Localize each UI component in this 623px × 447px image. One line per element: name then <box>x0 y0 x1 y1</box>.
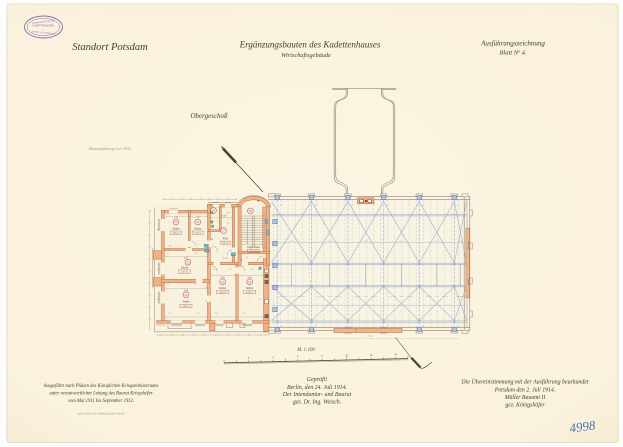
svg-text:1,8: 1,8 <box>198 214 201 216</box>
svg-text:— · —: — · — <box>41 29 47 31</box>
svg-text:4,1: 4,1 <box>167 284 170 286</box>
svg-text:4,50: 4,50 <box>435 296 440 298</box>
svg-text:Obergeschoß: Obergeschoß <box>190 112 228 120</box>
svg-text:Der Intendantur- und Baurat: Der Intendantur- und Baurat <box>282 392 352 398</box>
svg-text:1,1: 1,1 <box>246 257 249 259</box>
svg-text:Stube: Stube <box>246 286 254 290</box>
svg-text:2,5: 2,5 <box>239 218 242 220</box>
svg-text:45: 45 <box>422 325 424 327</box>
svg-text:Stube: Stube <box>172 226 180 230</box>
svg-text:45: 45 <box>457 325 459 327</box>
svg-text:2,4: 2,4 <box>197 313 200 315</box>
svg-text:45: 45 <box>387 205 389 207</box>
svg-text:Potsdam den 2. Juli 1914.: Potsdam den 2. Juli 1914. <box>494 387 556 394</box>
svg-text:Müller Bauamt II: Müller Bauamt II <box>504 395 547 401</box>
svg-text:4.40·5.25: 4.40·5.25 <box>182 305 189 308</box>
svg-text:35,44: 35,44 <box>367 334 374 338</box>
svg-text:85: 85 <box>259 299 261 301</box>
svg-text:Geprüft!: Geprüft! <box>307 376 328 383</box>
svg-text:unter verantwortlicher Leitung: unter verantwortlicher Leitung des Baura… <box>49 392 152 397</box>
svg-text:45: 45 <box>280 325 282 327</box>
svg-text:4,1: 4,1 <box>167 253 170 255</box>
svg-text:1,6: 1,6 <box>215 313 218 315</box>
svg-text:1,4: 1,4 <box>227 223 230 225</box>
svg-text:60: 60 <box>157 229 159 231</box>
svg-text:Berlin, den 24. Juli 1914.: Berlin, den 24. Juli 1914. <box>287 385 347 391</box>
svg-text:4.40·5.25: 4.40·5.25 <box>194 232 201 235</box>
svg-text:Stube: Stube <box>182 300 190 304</box>
svg-text:45: 45 <box>315 325 317 327</box>
svg-text:2,6: 2,6 <box>195 253 198 255</box>
svg-text:Flur: Flur <box>222 237 230 241</box>
svg-text:(7.10·3.25): (7.10·3.25) <box>249 250 258 253</box>
svg-text:Die Übereinstimmung mit der Au: Die Übereinstimmung mit der Ausführung b… <box>460 377 588 385</box>
svg-text:Stube: Stube <box>181 265 189 269</box>
svg-text:2,0: 2,0 <box>251 269 254 271</box>
svg-text:4,50: 4,50 <box>327 296 332 298</box>
svg-text:2,8: 2,8 <box>243 313 246 315</box>
svg-text:Stube: Stube <box>219 286 227 290</box>
svg-text:1,9: 1,9 <box>213 269 216 271</box>
svg-text:55: 55 <box>157 269 159 271</box>
svg-text:45: 45 <box>387 325 389 327</box>
svg-text:1,20: 1,20 <box>166 214 170 216</box>
svg-text:3,9: 3,9 <box>169 313 172 315</box>
svg-text:Bauausführung von 1912: Bauausführung von 1912 <box>89 146 131 151</box>
svg-text:4,50: 4,50 <box>364 296 369 298</box>
svg-text:KADETTENHAUSES: KADETTENHAUSES <box>33 25 55 28</box>
svg-text:1,2: 1,2 <box>257 239 260 241</box>
svg-text:45: 45 <box>422 205 424 207</box>
svg-text:45: 45 <box>280 205 282 207</box>
svg-text:Blatt Nº 4.: Blatt Nº 4. <box>499 50 526 57</box>
svg-text:95: 95 <box>211 223 213 225</box>
svg-text:4.40·5.25: 4.40·5.25 <box>222 242 229 245</box>
svg-text:gez. Dr. Ing. Weisch.: gez. Dr. Ing. Weisch. <box>293 399 341 405</box>
svg-text:Ausgeführt nach Plänen des Kön: Ausgeführt nach Plänen des Königlichen K… <box>43 384 159 389</box>
svg-text:gez. Königshöfer: gez. Königshöfer <box>505 402 545 409</box>
svg-text:2,3: 2,3 <box>180 214 183 216</box>
svg-text:45: 45 <box>457 205 459 207</box>
svg-text:70: 70 <box>205 301 207 303</box>
svg-text:2,2: 2,2 <box>229 269 232 271</box>
svg-text:Ausführungszeichnung: Ausführungszeichnung <box>480 40 545 48</box>
svg-text:Standort Potsdam: Standort Potsdam <box>72 42 148 53</box>
svg-text:vom Mai 1911 bis September 191: vom Mai 1911 bis September 1912. <box>68 399 134 404</box>
svg-text:Ergänzungsbauten des Kadettenh: Ergänzungsbauten des Kadettenhauses <box>239 40 381 50</box>
svg-text:Treppenhaus: Treppenhaus <box>247 246 260 249</box>
svg-text:2,6: 2,6 <box>195 284 198 286</box>
svg-text:45: 45 <box>351 325 353 327</box>
svg-text:60: 60 <box>157 299 159 301</box>
svg-text:4,50: 4,50 <box>399 296 404 298</box>
svg-text:45: 45 <box>351 205 353 207</box>
svg-text:M. 1:100: M. 1:100 <box>296 348 315 353</box>
svg-text:45: 45 <box>315 205 317 207</box>
svg-text:Kgl. Geheime Ober-Hofbuchdruck: Kgl. Geheime Ober-Hofbuchdruckerei Berli… <box>77 413 126 416</box>
svg-text:4,50: 4,50 <box>289 296 294 298</box>
svg-text:Wirtschaftsgebäude: Wirtschaftsgebäude <box>281 52 331 59</box>
